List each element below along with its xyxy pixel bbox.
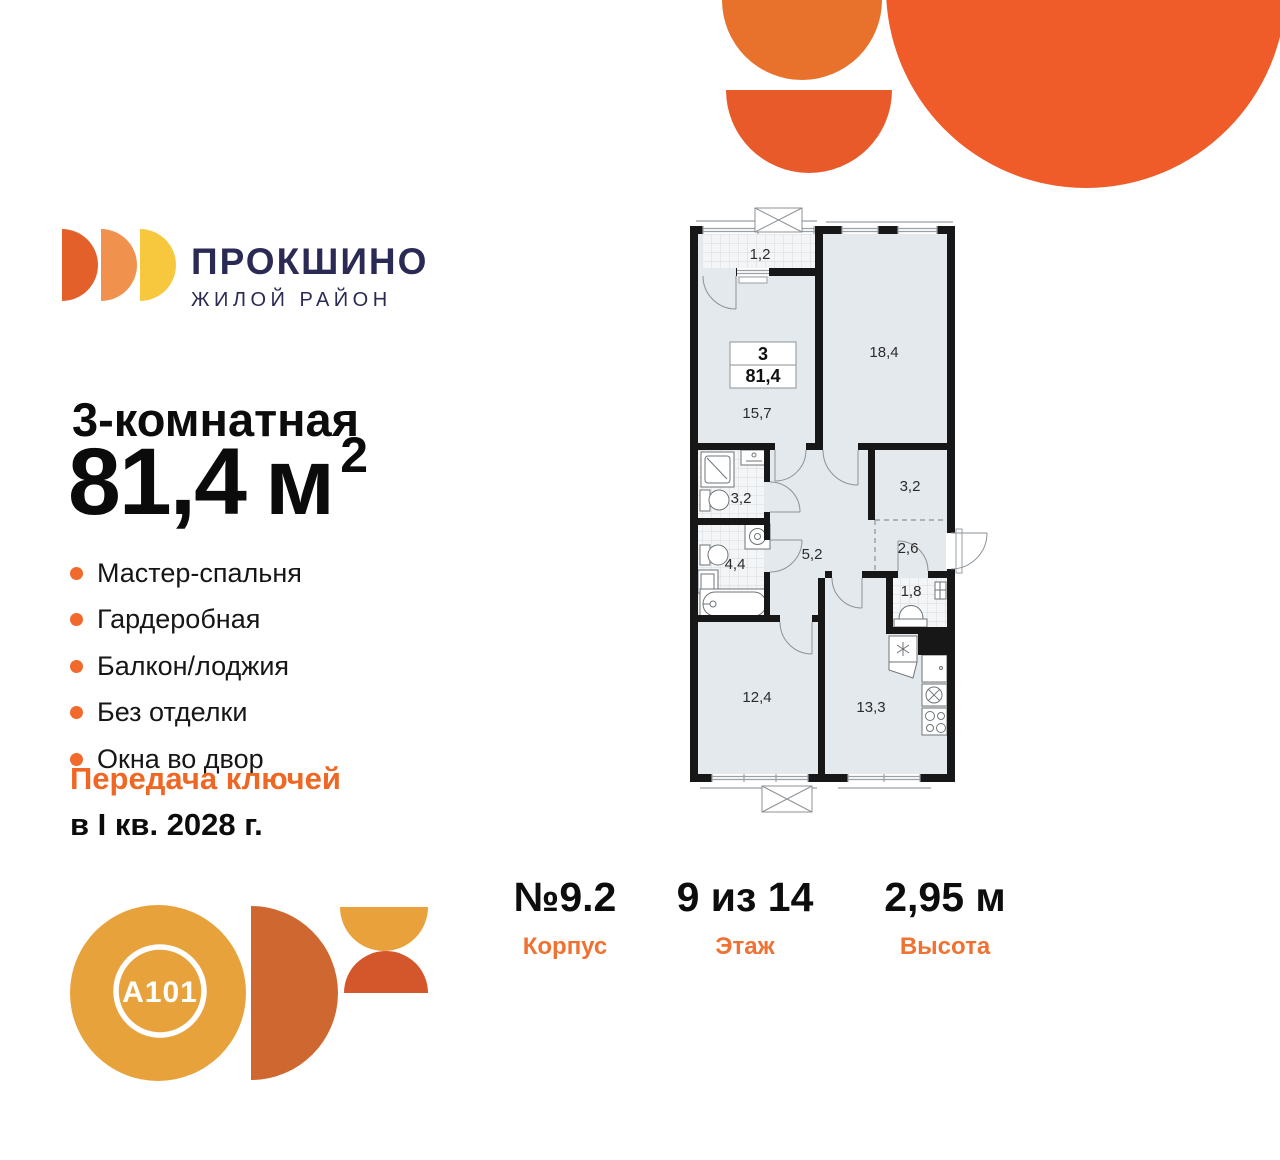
feature-list: Мастер-спальня Гардеробная Балкон/лоджия… xyxy=(70,550,302,783)
feature-item: Гардеробная xyxy=(70,597,302,644)
unit-info-box: 3 81,4 xyxy=(730,342,796,388)
stove xyxy=(922,708,947,735)
decorative-shapes-top-right xyxy=(700,0,1280,200)
kitchen-sink xyxy=(922,684,947,706)
dome-shape xyxy=(344,951,428,993)
unit-total-area: 81,4 xyxy=(745,366,780,386)
bullet-icon xyxy=(70,613,83,626)
feature-label: Гардеробная xyxy=(97,604,260,635)
feature-label: Без отделки xyxy=(97,697,247,728)
apartment-card: ПРОКШИНО ЖИЛОЙ РАЙОН 3-комнатная 81,4м2 … xyxy=(0,0,1280,1160)
entrance-opening xyxy=(946,533,956,569)
detail-building: №9.2 Корпус xyxy=(465,874,665,961)
room-label-bedroom-top: 18,4 xyxy=(869,344,898,361)
semicircle-shape xyxy=(726,90,892,173)
room-label-laundry: 1,8 xyxy=(901,583,922,600)
feature-label: Мастер-спальня xyxy=(97,558,302,589)
wall-box xyxy=(935,582,946,599)
sink xyxy=(741,450,768,465)
brand-text-block: ПРОКШИНО ЖИЛОЙ РАЙОН xyxy=(191,241,428,312)
floor-plan: 3 81,4 1,2 15,7 18,4 3,2 3,2 2,6 5,2 4,4… xyxy=(630,190,1030,830)
area-unit: м xyxy=(265,429,335,535)
bathtub xyxy=(700,589,769,619)
area-superscript: 2 xyxy=(340,426,368,484)
logo-halfdisc xyxy=(62,229,98,301)
brand-name: ПРОКШИНО xyxy=(191,241,428,283)
room-label-wardrobe: 3,2 xyxy=(900,478,921,495)
detail-ceiling-height: 2,95 м Высота xyxy=(845,874,1045,961)
balcony-marker-top xyxy=(755,208,802,232)
listing-area: 81,4м2 xyxy=(68,428,368,537)
kitchen-counter xyxy=(922,655,947,682)
window-sill xyxy=(739,277,767,283)
ceiling-height-label: Высота xyxy=(845,933,1045,961)
logo-halfdisc xyxy=(140,229,176,301)
logo-halfdisc xyxy=(101,229,137,301)
developer-logo-composition: A101 xyxy=(0,870,470,1110)
bullet-icon xyxy=(70,660,83,673)
handover-title: Передача ключей xyxy=(70,761,341,797)
room-label-bathroom-top: 3,2 xyxy=(731,490,752,507)
fridge xyxy=(889,636,917,678)
semicircle-shape xyxy=(722,0,882,80)
feature-item: Без отделки xyxy=(70,690,302,737)
prokshino-logo-icon xyxy=(60,227,180,303)
feature-label: Балкон/лоджия xyxy=(97,651,289,682)
ceiling-height-value: 2,95 м xyxy=(845,874,1045,921)
a101-logo-text: A101 xyxy=(122,976,198,1009)
room-label-living: 15,7 xyxy=(742,405,771,422)
room-label-balcony: 1,2 xyxy=(750,246,771,263)
floor-label: Этаж xyxy=(645,933,845,961)
bullet-icon xyxy=(70,706,83,719)
detail-floor: 9 из 14 Этаж xyxy=(645,874,845,961)
handover-block: Передача ключей в I кв. 2028 г. xyxy=(70,761,341,843)
room-label-hall: 2,6 xyxy=(898,540,919,557)
room-label-kitchen: 13,3 xyxy=(856,699,885,716)
building-label: Корпус xyxy=(465,933,665,961)
handover-term: в I кв. 2028 г. xyxy=(70,807,341,843)
entrance-sill xyxy=(956,529,962,573)
room-label-bathroom-bottom: 4,4 xyxy=(725,556,746,573)
feature-item: Мастер-спальня xyxy=(70,550,302,597)
toilet xyxy=(700,490,729,511)
feature-item: Балкон/лоджия xyxy=(70,643,302,690)
bullet-icon xyxy=(70,567,83,580)
bowl-shape xyxy=(340,907,428,951)
building-number: №9.2 xyxy=(465,874,665,921)
balcony-marker-bottom xyxy=(762,786,812,812)
brand-tagline: ЖИЛОЙ РАЙОН xyxy=(191,289,428,312)
room-label-bedroom-bottom: 12,4 xyxy=(742,689,771,706)
area-value: 81,4 xyxy=(68,429,245,535)
unit-rooms-count: 3 xyxy=(758,344,768,364)
room-label-corridor: 5,2 xyxy=(802,546,823,563)
floor-number: 9 из 14 xyxy=(645,874,845,921)
big-circle-shape xyxy=(886,0,1280,188)
halfdisc-shape xyxy=(251,906,338,1080)
shower xyxy=(701,452,734,487)
